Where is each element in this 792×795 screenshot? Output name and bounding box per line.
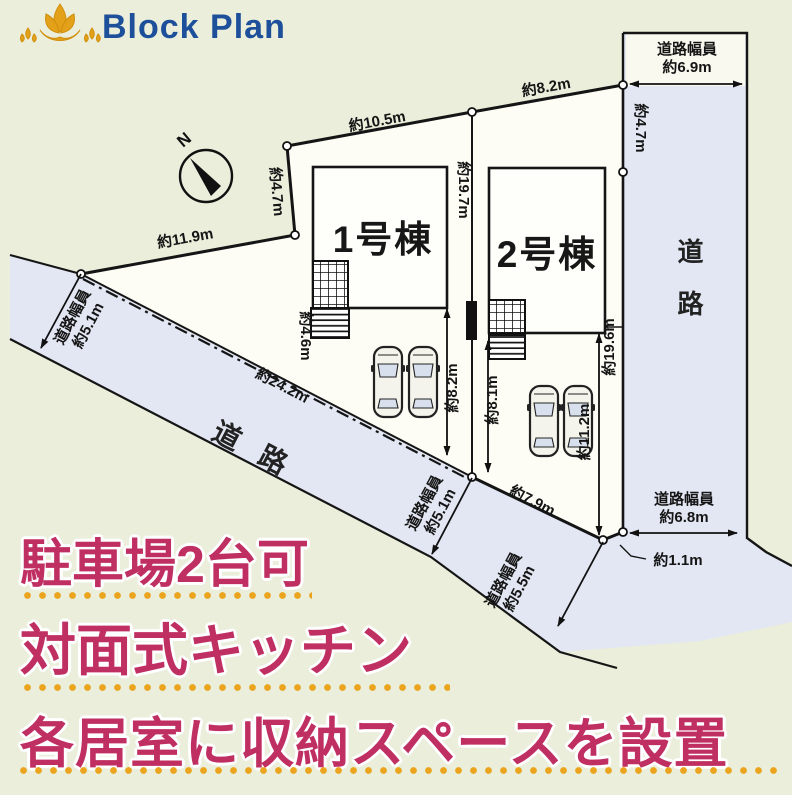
svg-text:道路幅員: 道路幅員 [654,490,714,508]
road-label-right: 道路 [674,237,704,342]
building-2-label: 2号棟 [497,234,598,275]
dim-left-edge: 約11.9m [156,224,215,252]
dim-jog: 約1.1m [653,551,702,569]
dim-right-length: 約19.6m [600,318,618,376]
dotted-divider-3 [16,766,780,775]
dim-right-top: 約4.7m [632,103,650,152]
dim-left-short: 約4.7m [266,166,288,217]
svg-text:道路幅員: 道路幅員 [657,40,717,58]
building-2-balcony-grid [489,300,525,333]
svg-text:約6.8m: 約6.8m [659,508,708,526]
building-1-balcony-grid [313,261,348,308]
dim-divide: 約19.7m [455,161,473,219]
north-compass-icon: N [173,129,232,202]
dim-lot2-side: 約11.2m [575,404,593,461]
car-icon [371,347,405,417]
feature-kitchen: 対面式キッチン [20,606,412,687]
car-icon [527,386,561,456]
svg-text:約6.9m: 約6.9m [662,58,711,76]
north-label: N [173,129,195,151]
building-1-label: 1号棟 [333,219,434,260]
dim-parking-2: 約8.1m [483,375,501,424]
feature-parking: 駐車場2台可 [20,522,309,597]
dim-approach-1: 約4.6m [297,311,315,360]
building-1-stairs [311,308,349,338]
flyer: Block Plan [0,0,792,795]
car-icon [406,347,440,417]
building-2-stairs [489,335,525,359]
dim-parking-1: 約8.2m [443,363,461,412]
dotted-divider-2 [20,683,450,692]
dotted-divider-1 [20,591,312,600]
